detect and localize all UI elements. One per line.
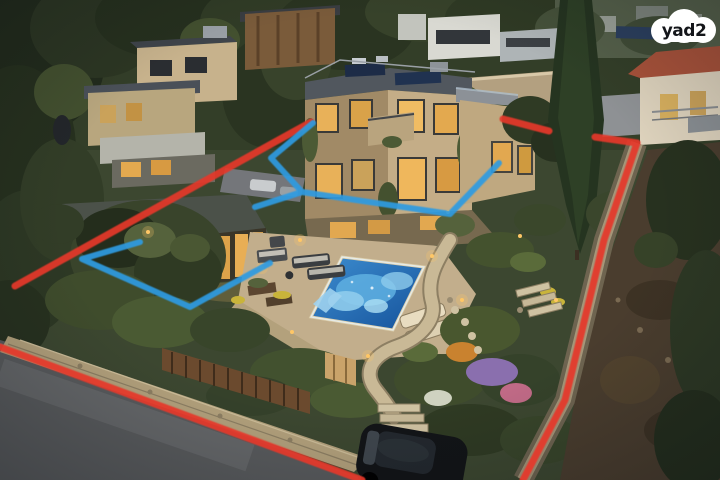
- listing-photo: yad2: [0, 0, 720, 480]
- vignette: [0, 0, 720, 480]
- scene-canvas: yad2: [0, 0, 720, 480]
- yad2-logo-text: yad2: [662, 21, 707, 41]
